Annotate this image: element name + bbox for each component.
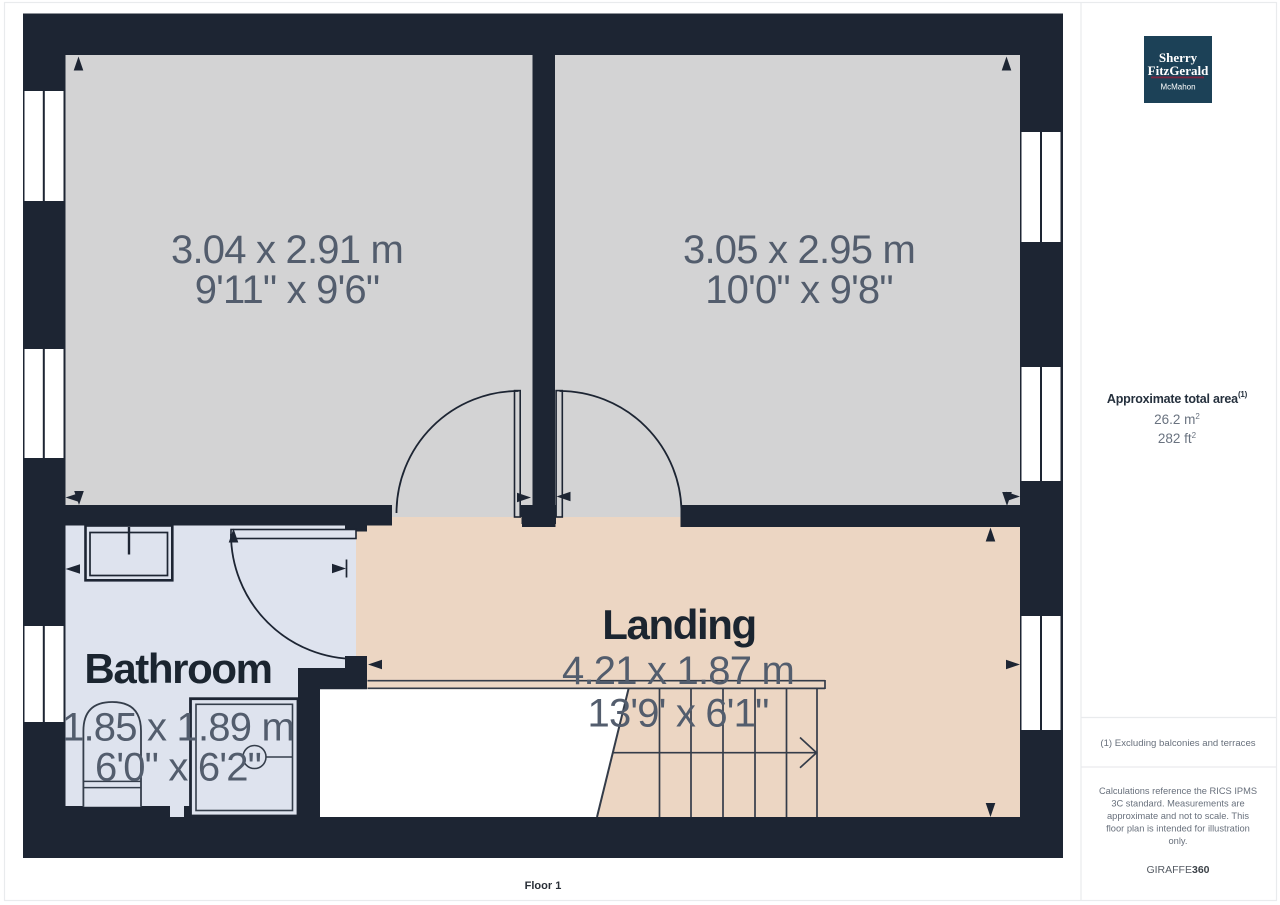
svg-text:9'11" x 9'6": 9'11" x 9'6" (195, 268, 380, 312)
svg-text:Approximate total area(1): Approximate total area(1) (1107, 390, 1248, 406)
svg-text:1.85 x 1.89 m: 1.85 x 1.89 m (62, 706, 294, 750)
svg-text:only.: only. (1169, 836, 1188, 846)
svg-text:4.21 x 1.87 m: 4.21 x 1.87 m (562, 649, 794, 693)
svg-text:Bathroom: Bathroom (84, 645, 271, 692)
svg-text:13'9' x 6'1": 13'9' x 6'1" (588, 692, 769, 736)
svg-text:McMahon: McMahon (1160, 83, 1195, 92)
svg-text:Floor 1: Floor 1 (525, 880, 562, 892)
svg-text:Calculations reference the RIC: Calculations reference the RICS IPMS (1099, 786, 1257, 796)
svg-text:10'0" x 9'8": 10'0" x 9'8" (705, 268, 893, 312)
svg-text:3.05 x 2.95 m: 3.05 x 2.95 m (683, 228, 915, 272)
svg-text:Landing: Landing (602, 601, 756, 648)
svg-text:26.2 m2: 26.2 m2 (1154, 412, 1200, 427)
svg-text:floor plan is intended for ill: floor plan is intended for illustration (1106, 824, 1250, 834)
svg-text:(1) Excluding balconies and te: (1) Excluding balconies and terraces (1100, 738, 1255, 749)
svg-text:approximate and not to scale.: approximate and not to scale. This (1107, 811, 1249, 821)
svg-text:GIRAFFE360: GIRAFFE360 (1146, 864, 1209, 876)
svg-text:3C standard. Measurements are: 3C standard. Measurements are (1111, 799, 1244, 809)
svg-text:6'0" x 6'2": 6'0" x 6'2" (95, 746, 261, 790)
svg-text:3.04 x 2.91 m: 3.04 x 2.91 m (171, 228, 403, 272)
svg-text:282 ft2: 282 ft2 (1158, 431, 1197, 446)
svg-text:FitzGerald: FitzGerald (1148, 63, 1209, 78)
